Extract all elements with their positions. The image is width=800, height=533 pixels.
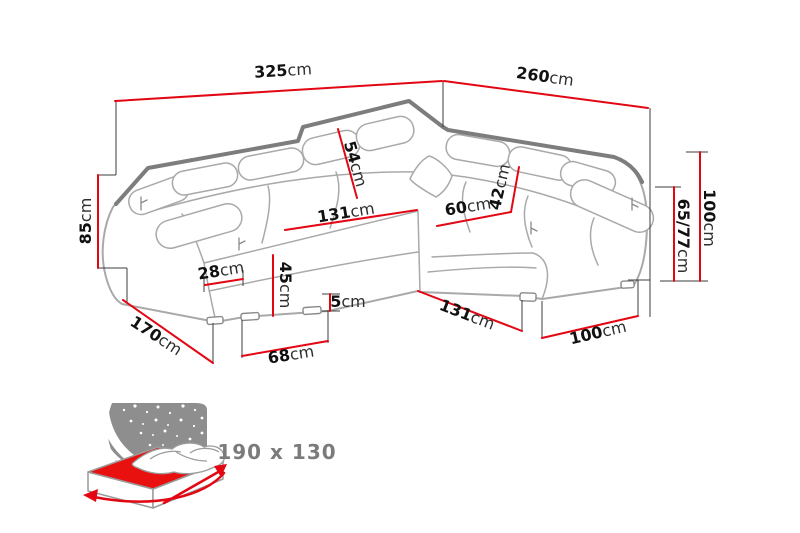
dimension-unit: cm bbox=[349, 199, 376, 222]
dimension-unit: cm bbox=[341, 292, 365, 311]
sleeping-area-size-label: 190 x 130 bbox=[217, 440, 336, 464]
dimension-value: 28 bbox=[196, 261, 221, 283]
dimension-value: 68 bbox=[266, 345, 291, 367]
sofa-bed-icon bbox=[83, 403, 227, 508]
dimension-unit: cm bbox=[287, 59, 313, 79]
dimension-value: 60 bbox=[443, 197, 468, 219]
dim-line-325 bbox=[115, 81, 442, 101]
dimension-unit: cm bbox=[548, 68, 575, 90]
dimension-label-325: 325cm bbox=[254, 61, 313, 80]
dimension-value: 65/77 bbox=[674, 199, 693, 249]
dimension-label-85: 85cm bbox=[78, 198, 94, 245]
dimension-unit: cm bbox=[76, 198, 95, 222]
dimension-value: 100 bbox=[700, 189, 719, 222]
dimension-label-45: 45cm bbox=[277, 262, 293, 309]
dimension-value: 45 bbox=[276, 262, 295, 284]
dimension-unit: cm bbox=[700, 223, 719, 247]
dimension-diagram: 325cm 260cm 85cm 54cm 131cm 60cm 42cm 10… bbox=[0, 0, 800, 533]
dimension-unit: cm bbox=[276, 284, 295, 308]
dimension-unit: cm bbox=[674, 249, 693, 273]
dimension-value: 5 bbox=[330, 292, 341, 311]
sofa-illustration bbox=[103, 101, 658, 325]
dimension-label-100-right: 100cm bbox=[701, 189, 717, 247]
dimension-value: 325 bbox=[254, 61, 289, 82]
dimension-label-65-77: 65/77cm bbox=[675, 199, 691, 274]
dimension-unit: cm bbox=[218, 257, 245, 280]
dimension-label-5: 5cm bbox=[330, 294, 366, 310]
dimension-unit: cm bbox=[288, 341, 315, 364]
dimension-value: 85 bbox=[76, 222, 95, 244]
